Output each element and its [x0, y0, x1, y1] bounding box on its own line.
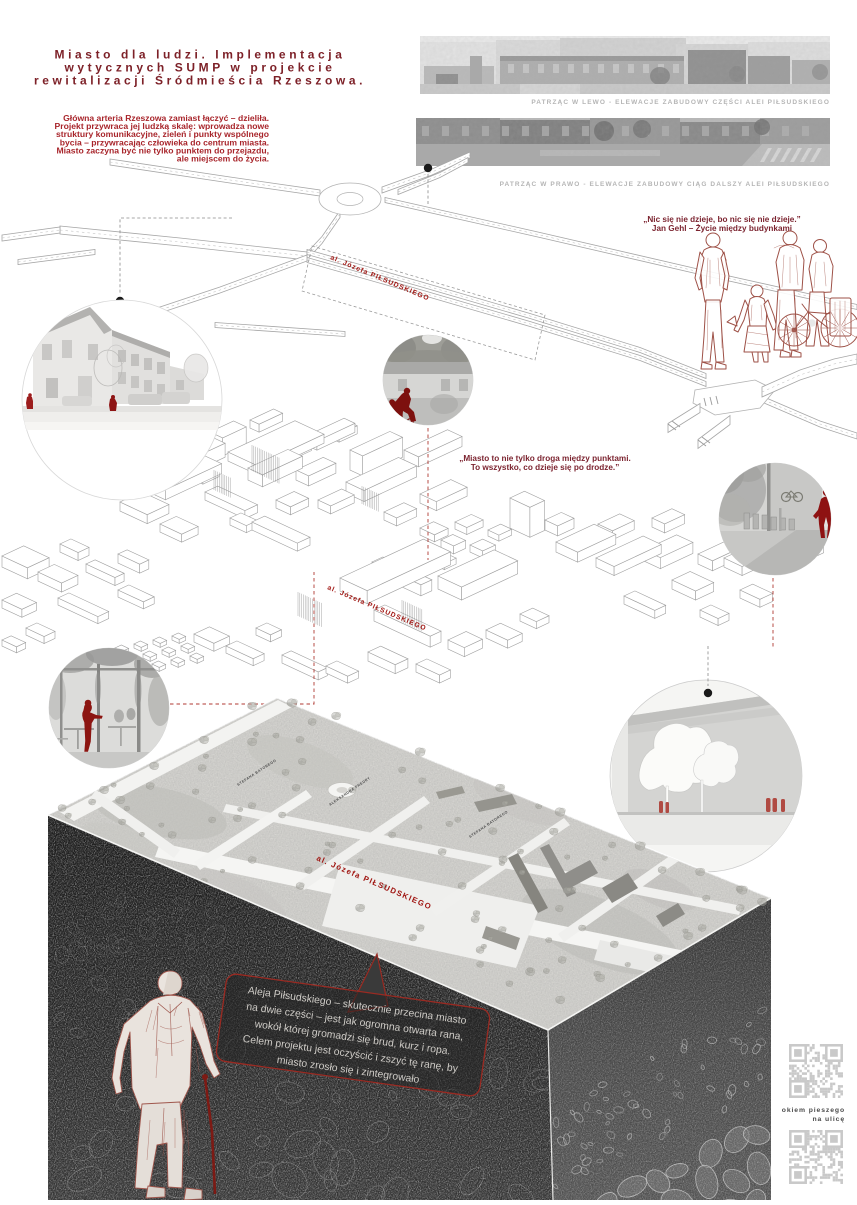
svg-text:„Nic się nie dzieje, bo nic si: „Nic się nie dzieje, bo nic się nie dzie…	[643, 215, 800, 224]
svg-text:„Miasto to nie tylko droga mię: „Miasto to nie tylko droga między punkta…	[459, 454, 631, 463]
svg-text:Jan Gehl – Życie między budynk: Jan Gehl – Życie między budynkami	[652, 223, 792, 233]
svg-text:na ulicę: na ulicę	[812, 1116, 845, 1123]
svg-text:ale miejscem do życia.: ale miejscem do życia.	[177, 154, 269, 164]
svg-text:Miasto dla ludzi. Implementacj: Miasto dla ludzi. Implementacja	[55, 48, 346, 62]
svg-text:To wszystko, co dzieje się po: To wszystko, co dzieje się po drodze.”	[471, 463, 620, 472]
svg-text:PATRZĄC W PRAWO - ELEWACJE ZAB: PATRZĄC W PRAWO - ELEWACJE ZABUDOWY CIĄG…	[500, 181, 830, 188]
svg-text:rewitalizacji Śródmieścia Rzes: rewitalizacji Śródmieścia Rzeszowa.	[34, 73, 366, 88]
svg-text:PATRZĄC W LEWO - ELEWACJE ZABU: PATRZĄC W LEWO - ELEWACJE ZABUDOWY CZĘŚC…	[531, 97, 830, 106]
svg-text:okiem pieszego: okiem pieszego	[782, 1107, 845, 1114]
svg-text:wytycznych SUMP w projekcie: wytycznych SUMP w projekcie	[63, 61, 335, 75]
